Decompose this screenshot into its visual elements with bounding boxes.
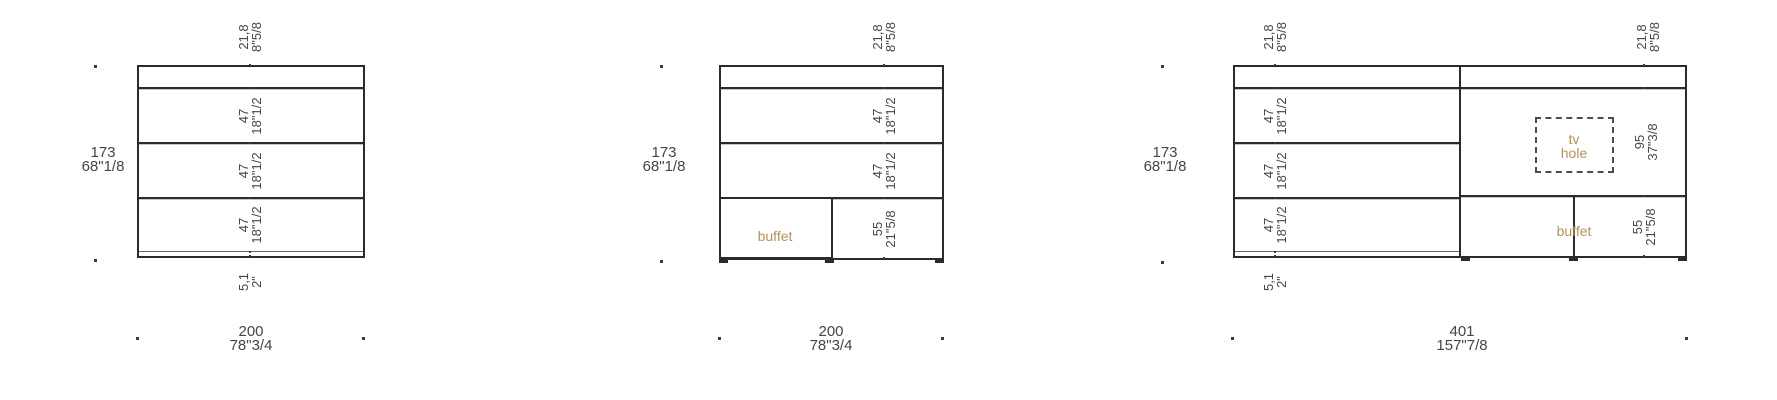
buffet-foot xyxy=(935,260,944,263)
unit1-row2-dimension: 4718"1/2 xyxy=(237,152,263,189)
dimension-tick xyxy=(249,255,251,257)
dimension-tick xyxy=(883,197,885,199)
unit1-top-section-dimension: 21,88"5/8 xyxy=(237,22,263,52)
reference-dot xyxy=(660,65,663,68)
tv-hole-label: tvhole xyxy=(1561,132,1587,160)
unit2-buffet-label: buffet xyxy=(758,229,793,243)
reference-dot xyxy=(94,65,97,68)
unit3-right-top-line xyxy=(1461,87,1685,89)
unit1-row1-dimension: 4718"1/2 xyxy=(237,97,263,134)
reference-dot xyxy=(660,260,663,263)
reference-dot xyxy=(941,337,944,340)
unit3-shelf-line xyxy=(1235,197,1459,199)
unit2-top-section-dimension: 21,88"5/8 xyxy=(871,22,897,52)
reference-dot xyxy=(1685,337,1688,340)
unit3-row3-dimension: 4718"1/2 xyxy=(1262,206,1288,243)
dimension-tick xyxy=(1643,87,1645,89)
unit1-shelf-line xyxy=(139,197,363,199)
unit3-plinth-line xyxy=(1235,251,1459,252)
unit2-row2-dimension: 4718"1/2 xyxy=(871,152,897,189)
dimension-tick xyxy=(1274,251,1276,253)
buffet-foot xyxy=(719,260,728,263)
dimension-tick xyxy=(1274,142,1276,144)
unit1-shelf-line xyxy=(139,142,363,144)
unit1-height-dimension: 17368"1/8 xyxy=(82,146,125,175)
dimension-tick xyxy=(1274,64,1276,66)
buffet-foot xyxy=(1461,258,1470,261)
unit3-width-dimension: 401157"7/8 xyxy=(1436,325,1487,354)
unit3-right-top-section-dimension: 21,88"5/8 xyxy=(1635,22,1661,52)
unit1-width-dimension: 20078"3/4 xyxy=(230,325,273,354)
dimension-tick xyxy=(883,142,885,144)
buffet-foot xyxy=(1569,258,1578,261)
unit2-width-dimension: 20078"3/4 xyxy=(810,325,853,354)
unit2-row1-dimension: 4718"1/2 xyxy=(871,97,897,134)
dimension-tick xyxy=(249,197,251,199)
unit3-row2-dimension: 4718"1/2 xyxy=(1262,152,1288,189)
reference-dot xyxy=(1161,261,1164,264)
unit3-shelf-line xyxy=(1235,87,1459,89)
dimension-tick xyxy=(1274,197,1276,199)
dimension-tick xyxy=(1274,87,1276,89)
dimension-tick xyxy=(249,142,251,144)
unit3-row1-dimension: 4718"1/2 xyxy=(1262,97,1288,134)
unit3-plinth-dimension: 5,12" xyxy=(1262,273,1288,291)
reference-dot xyxy=(94,259,97,262)
reference-dot xyxy=(1231,337,1234,340)
dimension-tick xyxy=(883,257,885,259)
unit2-buffet-dimension: 5521"5/8 xyxy=(871,210,897,247)
unit1-row3-dimension: 4718"1/2 xyxy=(237,206,263,243)
dimension-tick xyxy=(249,251,251,253)
unit3-buffet-label: buffet xyxy=(1557,224,1592,238)
dimension-tick xyxy=(883,64,885,66)
reference-dot xyxy=(718,337,721,340)
unit2-height-dimension: 17368"1/8 xyxy=(643,146,686,175)
reference-dot xyxy=(362,337,365,340)
unit3-tv-section-dimension: 9537"3/8 xyxy=(1633,123,1659,160)
dimension-tick xyxy=(1274,255,1276,257)
dimension-tick xyxy=(249,87,251,89)
buffet-foot xyxy=(825,260,834,263)
unit3-left-top-section-dimension: 21,88"5/8 xyxy=(1262,22,1288,52)
dimension-tick xyxy=(883,87,885,89)
dimension-drawing-canvas: 21,88"5/8 4718"1/2 4718"1/2 4718"1/2 5,1… xyxy=(0,0,1777,400)
unit3-height-dimension: 17368"1/8 xyxy=(1144,146,1187,175)
unit1-plinth-dimension: 5,12" xyxy=(237,273,263,291)
dimension-tick xyxy=(1643,255,1645,257)
unit1-plinth-line xyxy=(139,251,363,252)
reference-dot xyxy=(136,337,139,340)
dimension-tick xyxy=(249,64,251,66)
unit3-shelf-line xyxy=(1235,142,1459,144)
reference-dot xyxy=(1161,65,1164,68)
unit3-buffet-dimension: 5521"5/8 xyxy=(1631,208,1657,245)
dimension-tick xyxy=(1643,64,1645,66)
unit2-shelf-line xyxy=(721,87,942,89)
unit2-shelf-line xyxy=(721,142,942,144)
unit1-shelf-line xyxy=(139,87,363,89)
buffet-foot xyxy=(1678,258,1687,261)
dimension-tick xyxy=(1643,195,1645,197)
